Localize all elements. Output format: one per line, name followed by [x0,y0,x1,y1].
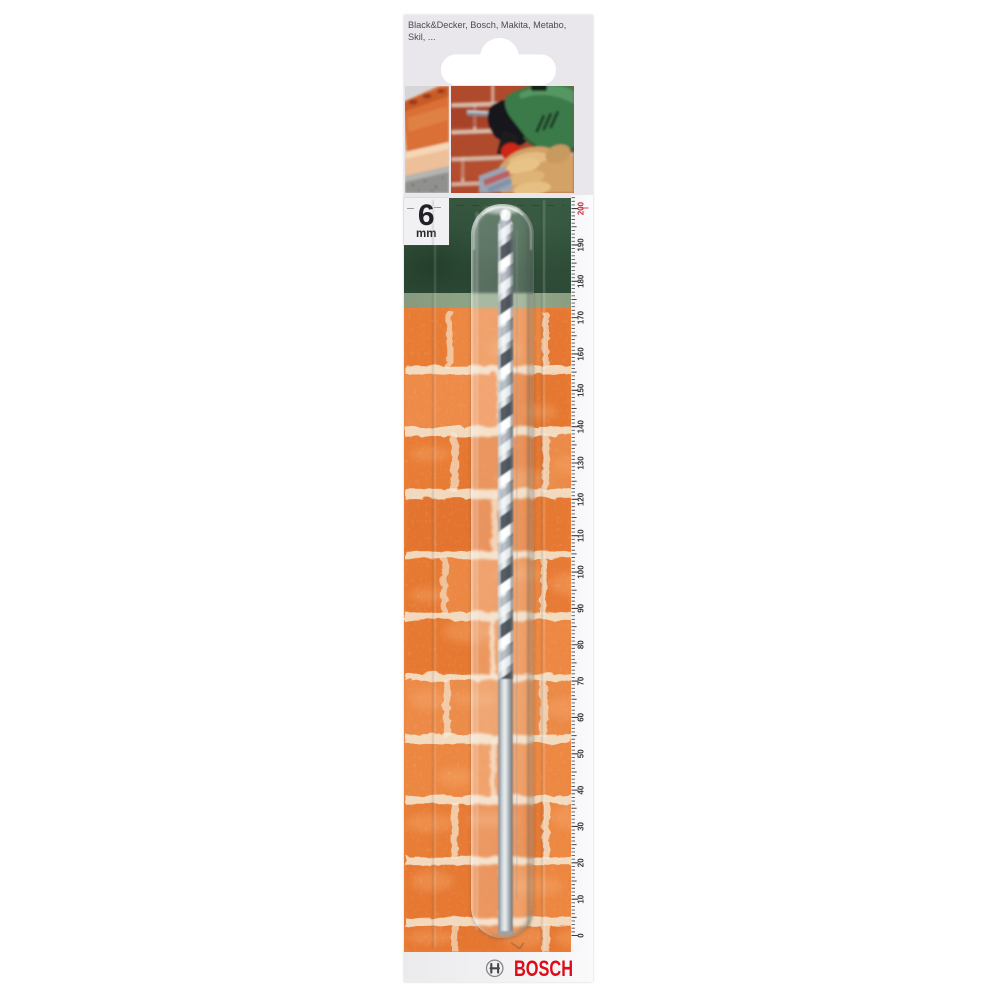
svg-text:80: 80 [576,640,585,649]
svg-text:BOSCH: BOSCH [514,956,573,981]
svg-text:170: 170 [576,310,585,324]
svg-text:90: 90 [576,603,585,612]
svg-text:110: 110 [576,529,585,542]
svg-text:60: 60 [576,712,585,721]
svg-text:180: 180 [576,274,585,288]
svg-text:160: 160 [576,347,585,361]
svg-text:140: 140 [576,420,585,434]
svg-text:150: 150 [576,383,585,397]
svg-text:100: 100 [576,565,585,579]
svg-text:20: 20 [576,858,585,867]
svg-text:120: 120 [576,492,585,506]
svg-text:10: 10 [576,894,585,903]
svg-text:40: 40 [576,785,585,794]
svg-text:50: 50 [576,749,585,758]
svg-text:70: 70 [576,676,585,685]
svg-text:200: 200 [576,201,585,215]
svg-text:0: 0 [576,933,585,938]
svg-text:190: 190 [576,238,585,252]
svg-text:30: 30 [576,822,585,831]
svg-text:130: 130 [576,456,585,470]
